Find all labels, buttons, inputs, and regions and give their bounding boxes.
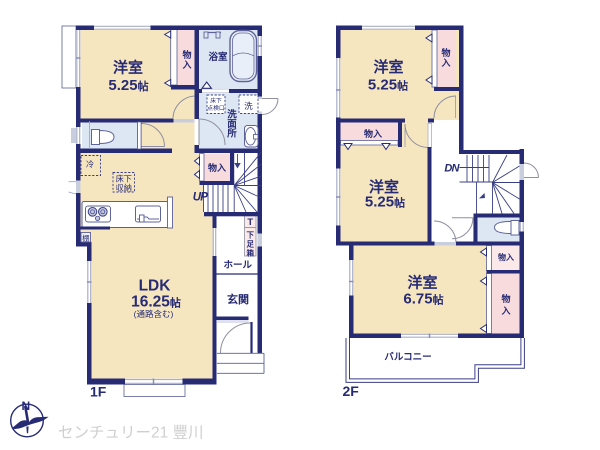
svg-text:バルコニー: バルコニー bbox=[384, 351, 431, 363]
svg-text:入: 入 bbox=[181, 60, 191, 70]
svg-text:冷: 冷 bbox=[86, 159, 94, 169]
svg-text:N: N bbox=[22, 399, 31, 413]
svg-text:物入: 物入 bbox=[208, 162, 226, 173]
svg-text:物入: 物入 bbox=[364, 128, 382, 139]
svg-text:T: T bbox=[247, 217, 253, 228]
svg-text:足: 足 bbox=[247, 240, 255, 249]
svg-text:1F: 1F bbox=[90, 384, 107, 400]
svg-text:(通路含む): (通路含む) bbox=[134, 309, 174, 319]
svg-text:センチュリー21 豐川: センチュリー21 豐川 bbox=[58, 424, 204, 442]
svg-text:床下: 床下 bbox=[116, 174, 132, 184]
svg-text:洗: 洗 bbox=[244, 101, 253, 111]
svg-text:ホール: ホール bbox=[223, 260, 252, 271]
svg-text:浴室: 浴室 bbox=[208, 51, 228, 63]
svg-text:物: 物 bbox=[441, 47, 450, 58]
svg-text:洋室: 洋室 bbox=[373, 58, 403, 76]
svg-text:入: 入 bbox=[500, 306, 510, 316]
svg-text:床下: 床下 bbox=[210, 97, 222, 105]
svg-text:物入: 物入 bbox=[498, 252, 514, 262]
svg-text:物: 物 bbox=[501, 293, 510, 304]
svg-text:下: 下 bbox=[247, 231, 255, 240]
svg-text:洋室: 洋室 bbox=[407, 274, 437, 292]
svg-text:点検口: 点検口 bbox=[207, 104, 225, 112]
svg-text:所: 所 bbox=[227, 128, 237, 140]
svg-text:入: 入 bbox=[440, 58, 450, 68]
svg-text:UP: UP bbox=[193, 192, 209, 204]
svg-text:2F: 2F bbox=[343, 383, 360, 399]
svg-text:物: 物 bbox=[182, 49, 191, 60]
svg-text:玄関: 玄関 bbox=[227, 292, 249, 306]
svg-text:棚: 棚 bbox=[82, 234, 89, 243]
svg-text:LDK: LDK bbox=[139, 278, 172, 295]
svg-text:収納: 収納 bbox=[116, 183, 132, 193]
svg-text:洋室: 洋室 bbox=[113, 59, 143, 77]
svg-text:DN: DN bbox=[444, 163, 460, 175]
svg-text:箱: 箱 bbox=[247, 248, 255, 258]
